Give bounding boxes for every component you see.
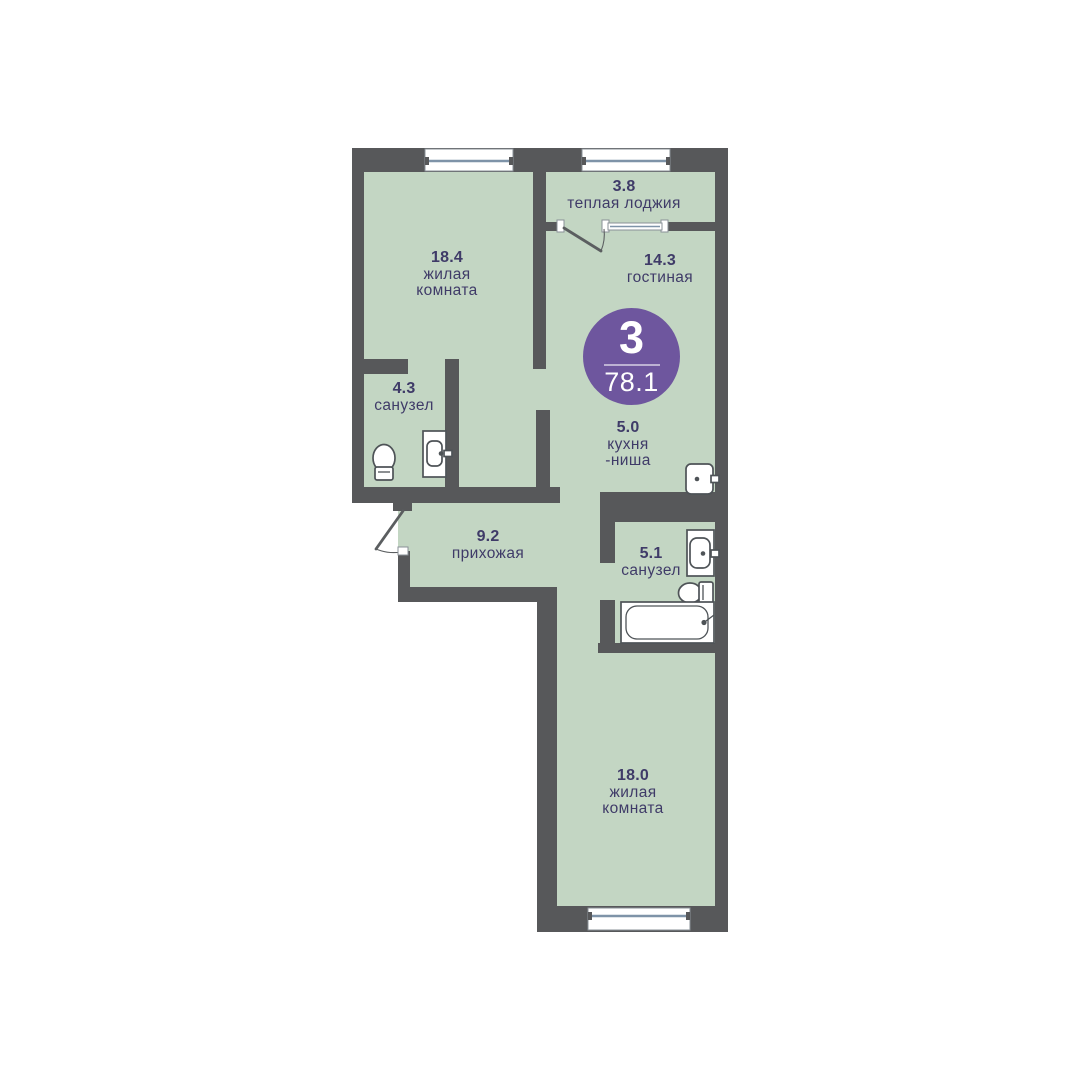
wall-loggia-right (666, 222, 715, 231)
floor-plan-drawing (0, 0, 1080, 1080)
wall-hallway-bottom (398, 587, 537, 602)
room-name: теплая лоджия (567, 196, 680, 212)
wall-upper-bottom (352, 487, 560, 503)
room-label-bathroom2: 5.1 санузел (621, 545, 681, 579)
wall-right-exterior (715, 148, 728, 932)
wall-entry-hinge-block (393, 498, 412, 511)
wall-bath2-bottom (598, 643, 715, 653)
wall-kitchen-bottom (600, 492, 715, 522)
room-area: 9.2 (452, 528, 524, 546)
window-icon (425, 149, 513, 171)
room-name: жилая (416, 267, 477, 283)
wall-loggia-left-stub (546, 222, 558, 231)
wall-bath1-top (364, 359, 408, 374)
room-name: прихожая (452, 546, 524, 562)
room-area: 5.1 (621, 545, 681, 563)
sink-icon (687, 530, 719, 576)
wall-left-exterior (352, 148, 364, 503)
total-area: 78.1 (604, 369, 659, 396)
wall-top-exterior (352, 148, 728, 172)
room-label-kitchen: 5.0 кухня -ниша (605, 419, 650, 469)
room-label-lounge: 14.3 гостиная (627, 252, 693, 286)
room-name: кухня (605, 437, 650, 453)
toilet-icon (373, 445, 395, 481)
bathtub-icon (621, 602, 714, 643)
room-area: 4.3 (374, 380, 434, 398)
badge-divider (604, 364, 660, 366)
room-area: 5.0 (605, 419, 650, 437)
rooms-count: 3 (619, 315, 644, 360)
window-icon (582, 149, 670, 171)
room-area: 3.8 (567, 178, 680, 196)
wall-bath1-right (445, 359, 459, 487)
apartment-summary-badge: 3 78.1 (583, 308, 680, 405)
room-label-living1: 18.4 жилая комната (416, 249, 477, 299)
toilet-icon (679, 582, 714, 603)
room-area: 18.4 (416, 249, 477, 267)
room-area: 14.3 (627, 252, 693, 270)
room-label-loggia: 3.8 теплая лоджия (567, 178, 680, 212)
wall-entry-lower (398, 551, 410, 587)
room-name: санузел (374, 398, 434, 414)
room-area: 18.0 (602, 767, 663, 785)
wall-bath2-left-upper (600, 522, 615, 563)
room-name: -ниша (605, 453, 650, 469)
wall-kitchen-left (536, 410, 550, 493)
room-name: комната (416, 283, 477, 299)
window-icon (588, 908, 690, 930)
room-label-hallway: 9.2 прихожая (452, 528, 524, 562)
room-name: санузел (621, 563, 681, 579)
room-label-bathroom1: 4.3 санузел (374, 380, 434, 414)
wall-lower-left-exterior (537, 587, 557, 932)
wall-central (533, 172, 546, 369)
floor-plan-canvas: 3.8 теплая лоджия 18.4 жилая комната 14.… (0, 0, 1080, 1080)
room-name: гостиная (627, 270, 693, 286)
room-name: комната (602, 801, 663, 817)
room-label-living2: 18.0 жилая комната (602, 767, 663, 817)
room-name: жилая (602, 785, 663, 801)
